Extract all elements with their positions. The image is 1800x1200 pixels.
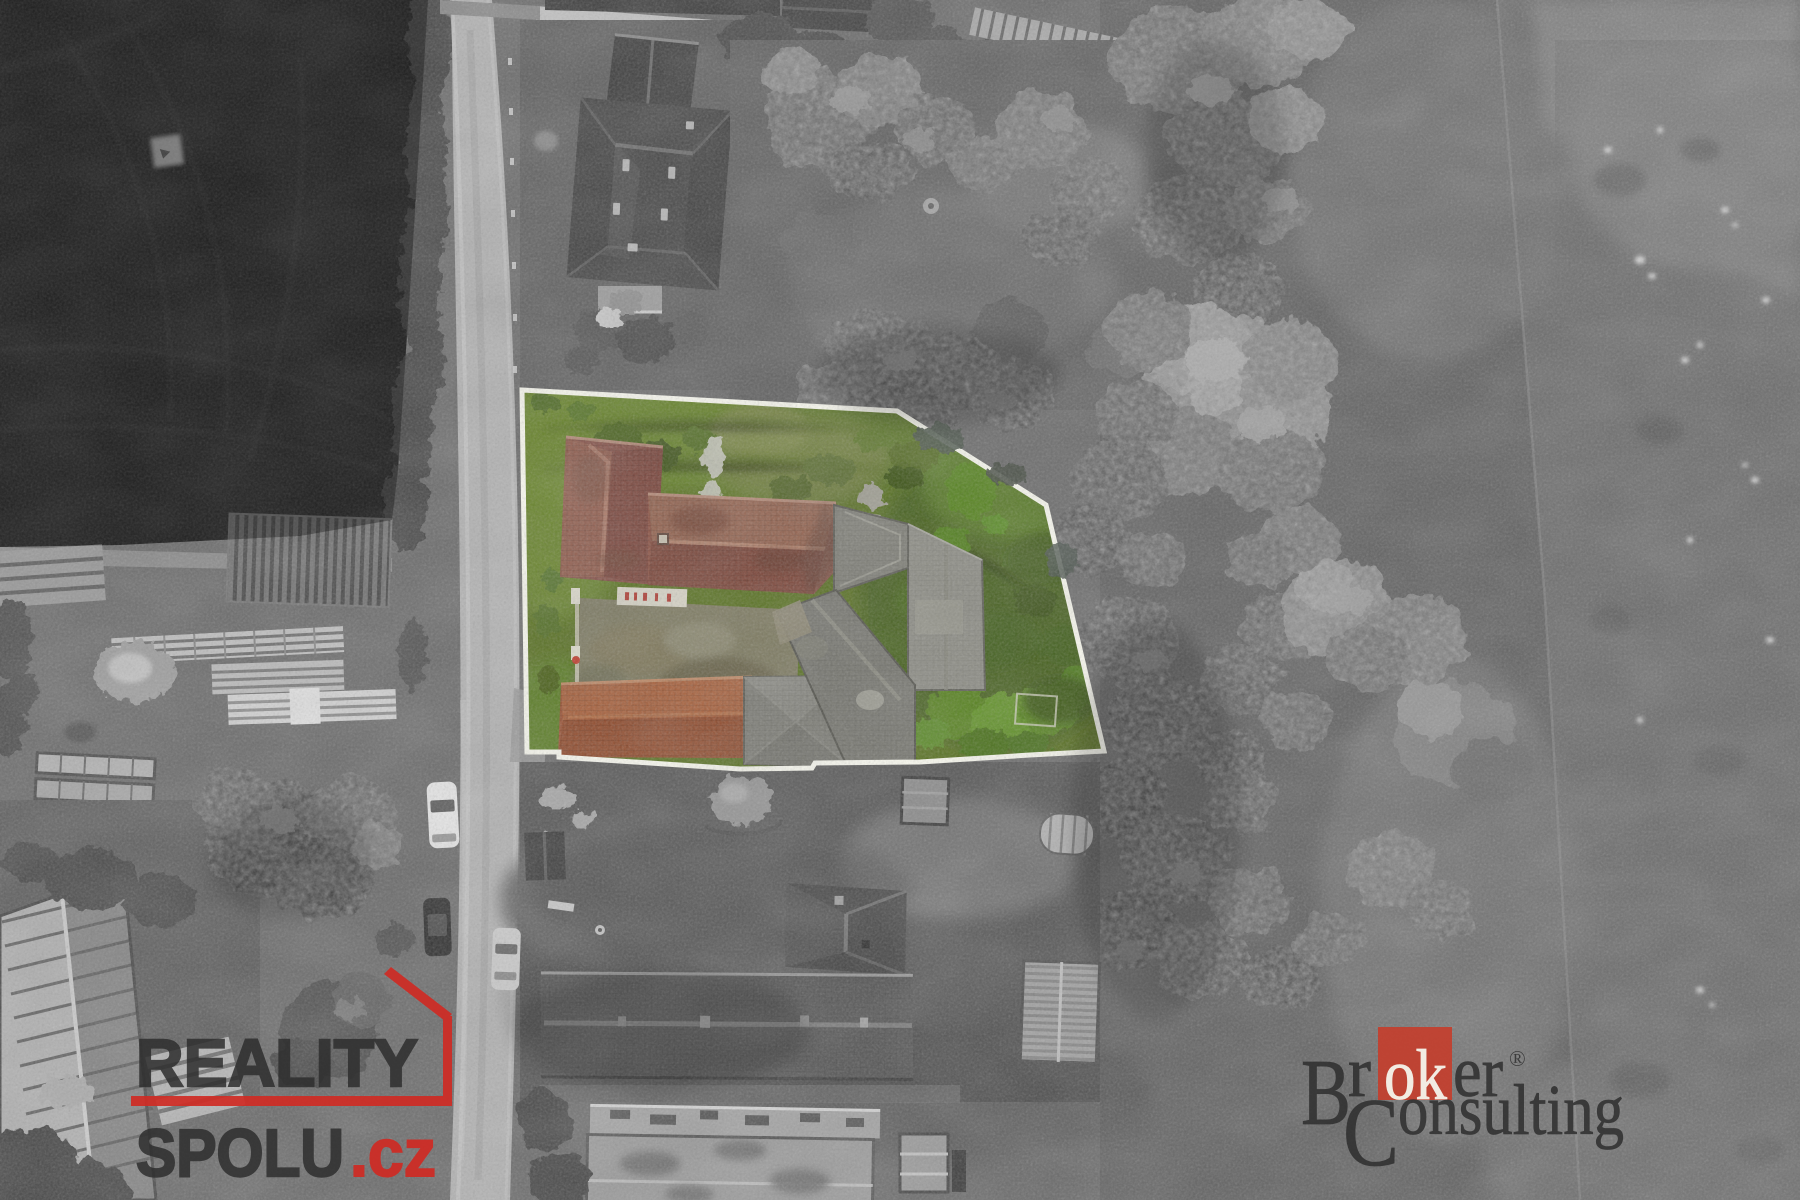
svg-text:.cz: .cz: [350, 1116, 436, 1191]
svg-text:SPOLU: SPOLU: [136, 1116, 344, 1191]
svg-text:REALITY: REALITY: [136, 1026, 418, 1101]
svg-text:onsulting: onsulting: [1398, 1070, 1624, 1150]
svg-text:C: C: [1343, 1079, 1399, 1187]
svg-text:®: ®: [1509, 1046, 1526, 1071]
